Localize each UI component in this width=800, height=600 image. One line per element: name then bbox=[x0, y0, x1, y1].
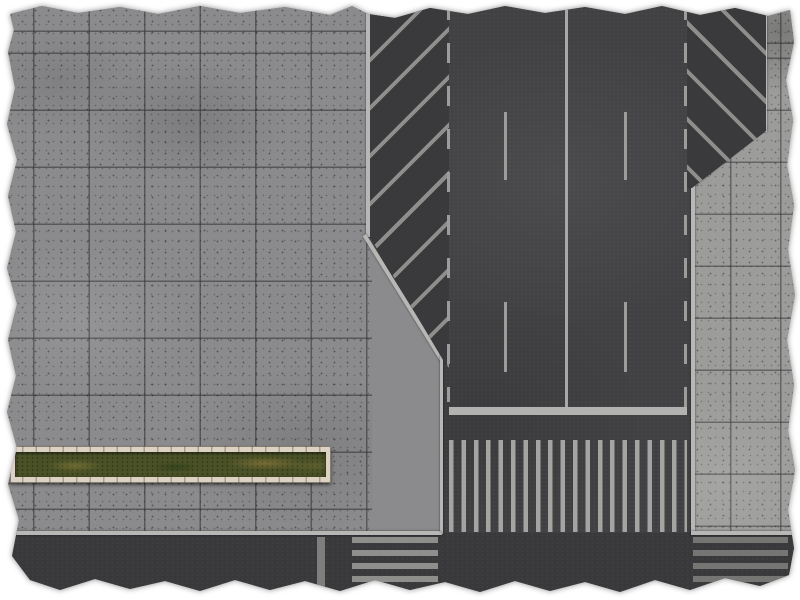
gaming-mat bbox=[0, 0, 800, 600]
stop-line-west bbox=[317, 537, 325, 588]
crosswalk-west bbox=[352, 537, 438, 584]
mat-shadow-wrap bbox=[0, 0, 800, 600]
crosswalk-main bbox=[449, 440, 687, 532]
curb-cross-street-east bbox=[691, 531, 792, 535]
center-line bbox=[565, 0, 568, 407]
edge-dash-line-right bbox=[684, 0, 687, 410]
lane-dash-left-upper bbox=[504, 112, 507, 180]
stop-line-main bbox=[449, 407, 687, 415]
lane-dash-right-lower bbox=[624, 302, 627, 372]
curb-right-lower bbox=[691, 186, 695, 534]
screenshot-canvas bbox=[0, 0, 800, 600]
lane-dash-left-lower bbox=[504, 302, 507, 372]
curb-left-lower bbox=[440, 356, 444, 534]
lane-dash-right-upper bbox=[624, 112, 627, 180]
curb-cross-street-west bbox=[8, 531, 442, 535]
curb-left-upper bbox=[366, 0, 370, 237]
planter bbox=[10, 446, 331, 483]
edge-dash-line-left bbox=[447, 0, 450, 402]
crosswalk-east bbox=[693, 537, 788, 589]
planter-grass bbox=[15, 452, 326, 477]
